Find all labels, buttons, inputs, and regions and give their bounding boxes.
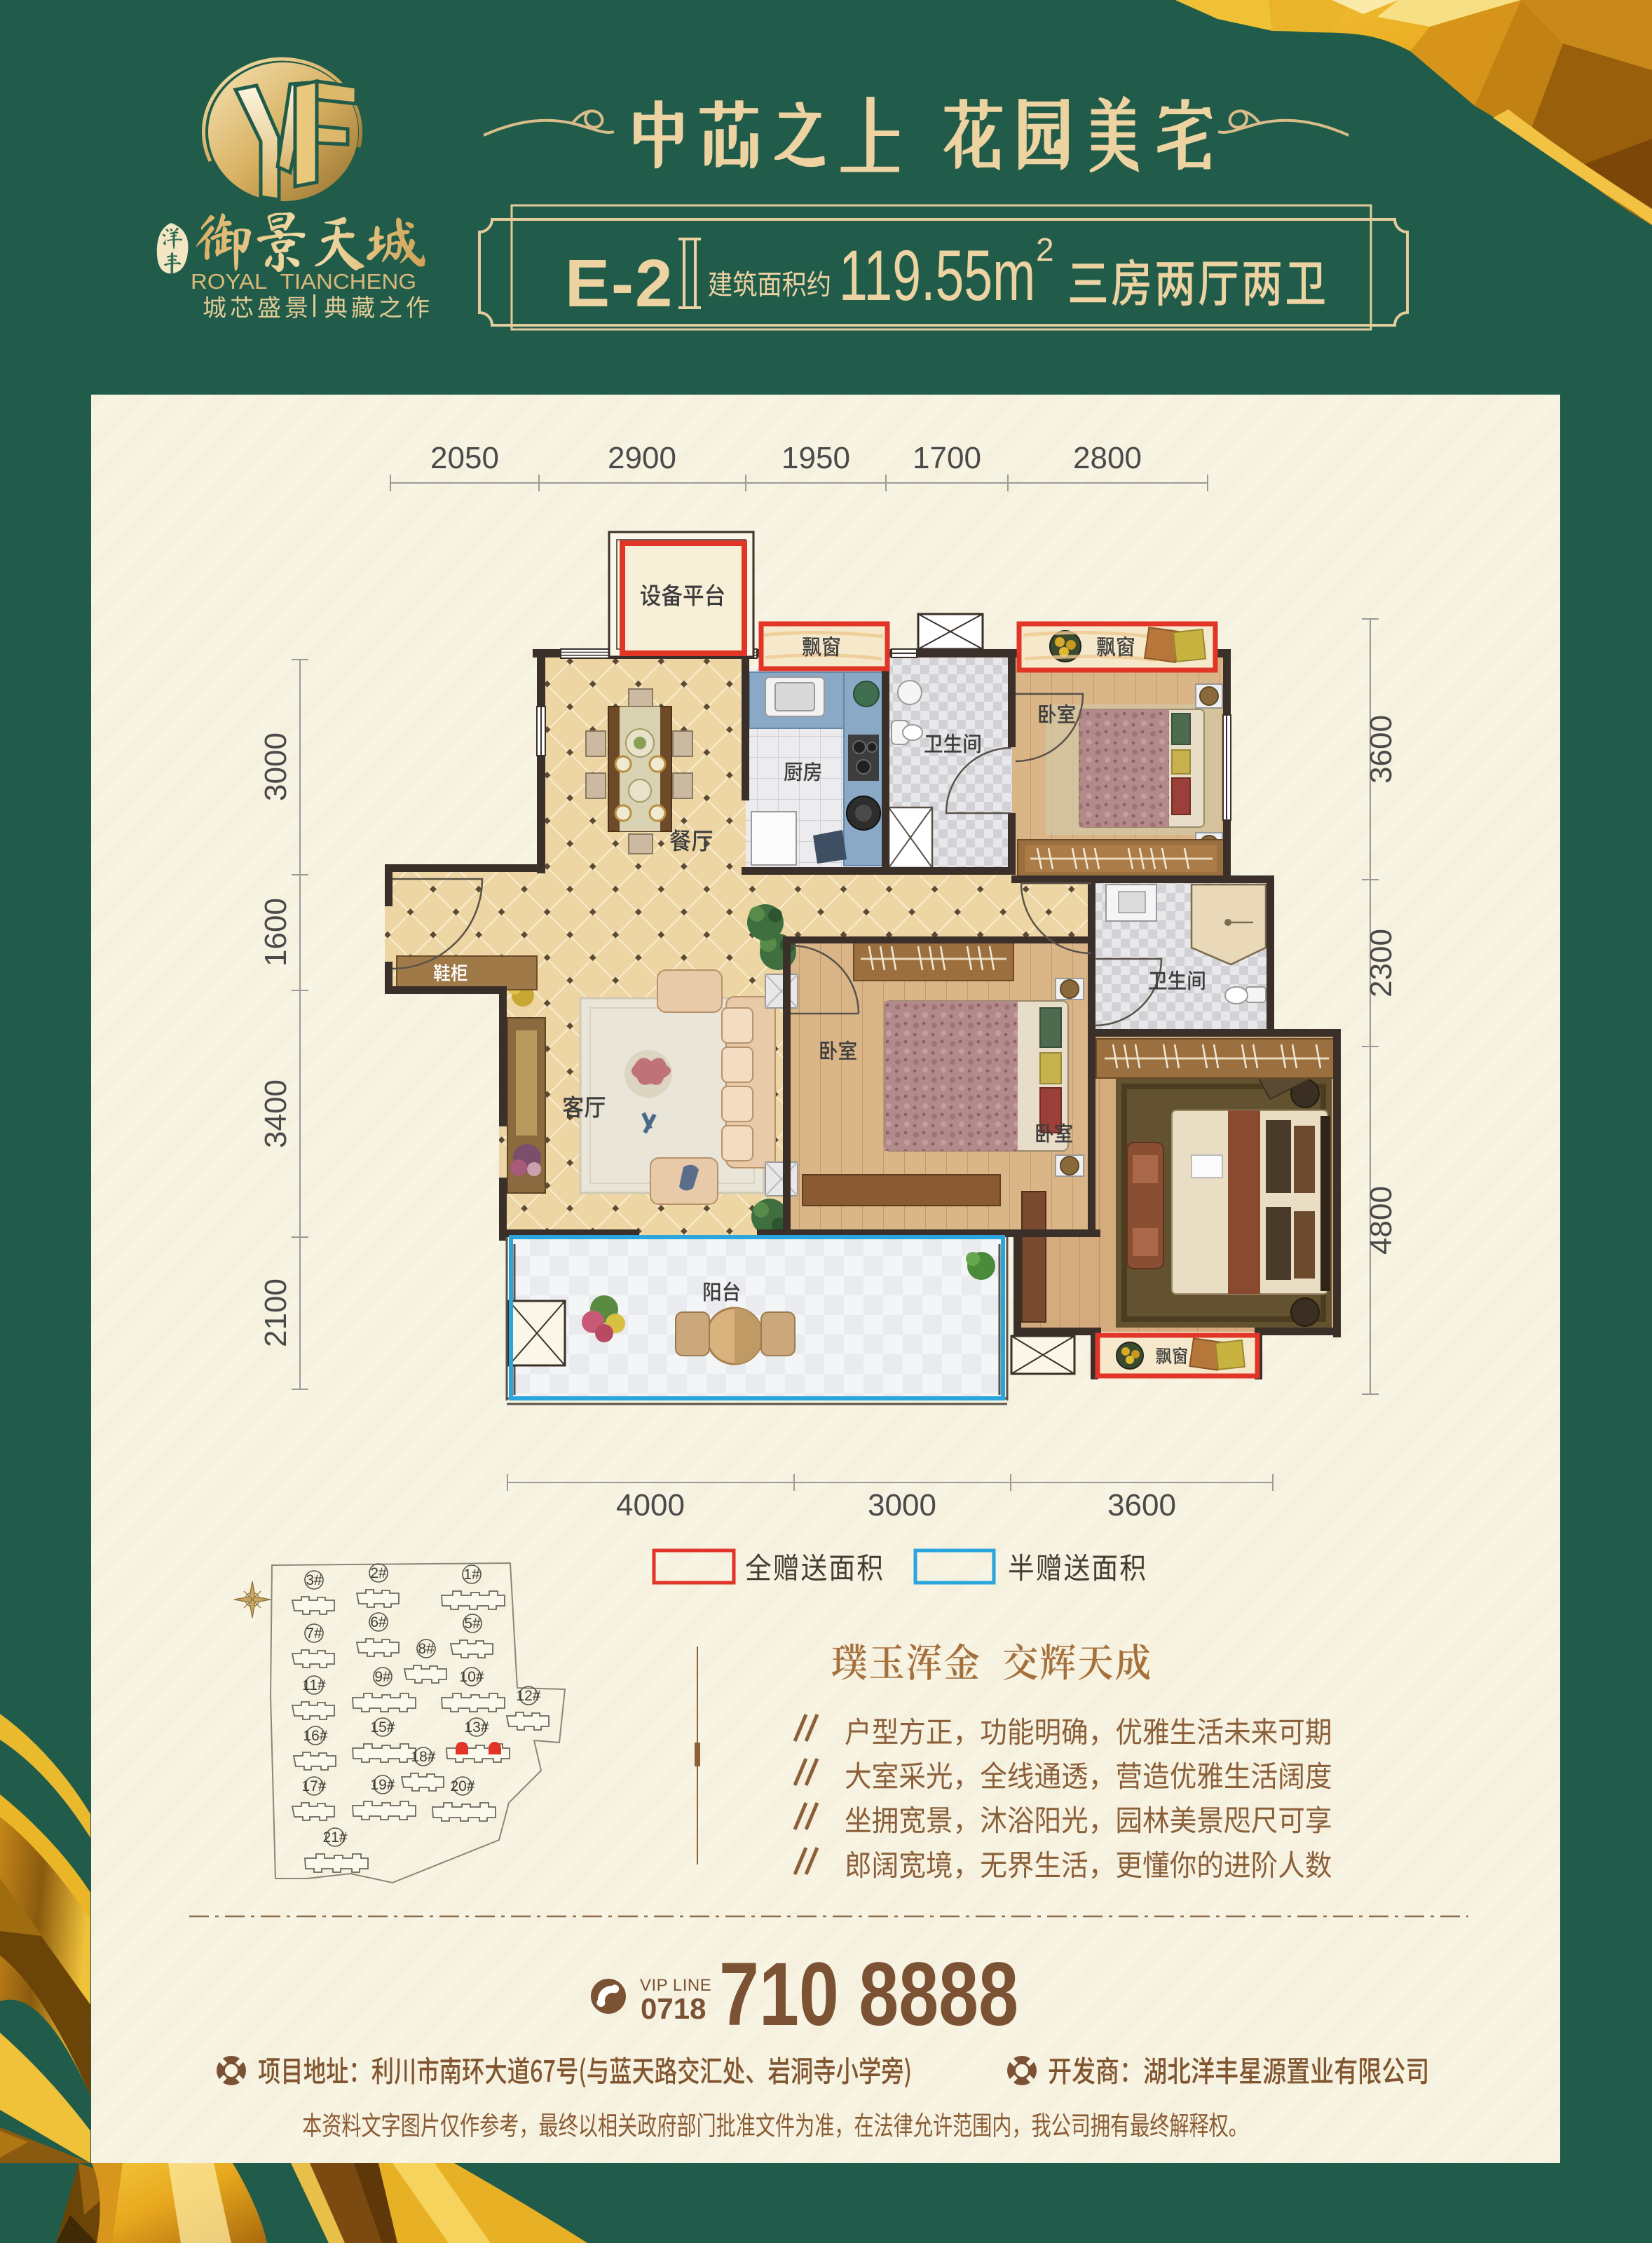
svg-text:6#: 6# (370, 1614, 387, 1630)
svg-text:3000: 3000 (868, 1488, 936, 1522)
svg-text:9#: 9# (374, 1669, 391, 1685)
svg-text:20#: 20# (450, 1778, 475, 1794)
svg-text:5#: 5# (464, 1616, 481, 1632)
svg-text:2#: 2# (370, 1565, 387, 1581)
svg-text:3600: 3600 (1107, 1488, 1176, 1522)
svg-text:119.55m: 119.55m (839, 236, 1035, 315)
svg-text:16#: 16# (303, 1728, 327, 1744)
svg-text:19#: 19# (370, 1777, 395, 1793)
svg-text:1600: 1600 (259, 898, 293, 967)
svg-text:15#: 15# (370, 1719, 395, 1736)
svg-text:1950: 1950 (781, 441, 850, 475)
svg-text:710 8888: 710 8888 (719, 1944, 1018, 2045)
svg-text:2800: 2800 (1073, 441, 1142, 475)
svg-text:2300: 2300 (1364, 929, 1398, 997)
svg-text:18#: 18# (411, 1749, 435, 1765)
svg-text:4800: 4800 (1364, 1186, 1398, 1255)
svg-text:2100: 2100 (259, 1279, 293, 1347)
svg-text:E-2: E-2 (565, 246, 674, 321)
svg-text:8#: 8# (418, 1641, 435, 1657)
svg-text:12#: 12# (516, 1688, 540, 1704)
svg-text:0718: 0718 (641, 1992, 706, 2025)
svg-text:2050: 2050 (430, 441, 499, 475)
svg-text:2: 2 (1036, 231, 1054, 268)
svg-text:ROYAL TIANCHENG: ROYAL TIANCHENG (191, 269, 416, 294)
svg-text:3000: 3000 (259, 732, 293, 801)
svg-text:4000: 4000 (616, 1488, 685, 1522)
svg-text:1#: 1# (463, 1567, 480, 1583)
svg-text:11#: 11# (302, 1677, 326, 1693)
svg-text:3#: 3# (306, 1572, 322, 1588)
svg-text:21#: 21# (322, 1829, 347, 1846)
svg-text:1700: 1700 (913, 441, 981, 475)
svg-text:10#: 10# (459, 1669, 484, 1685)
svg-text:17#: 17# (301, 1778, 326, 1794)
svg-text:3400: 3400 (259, 1079, 293, 1148)
svg-text:7#: 7# (306, 1625, 322, 1642)
svg-text:13#: 13# (464, 1719, 489, 1736)
svg-text:2900: 2900 (608, 441, 676, 475)
svg-text:3600: 3600 (1364, 715, 1398, 784)
